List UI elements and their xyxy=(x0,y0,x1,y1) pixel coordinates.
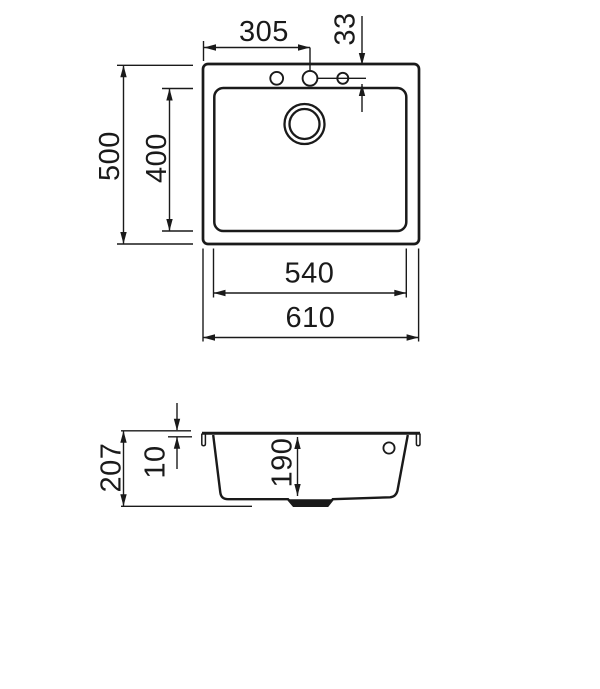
dim-label-207: 207 xyxy=(96,443,128,493)
dim-label-400: 400 xyxy=(141,133,173,183)
arrowhead-up xyxy=(120,431,126,443)
arrowhead-down xyxy=(120,494,126,506)
dimension-faucet-edge-distance: 33 xyxy=(330,12,366,112)
side-view: 207 10 190 xyxy=(96,403,421,506)
bowl-section-profile xyxy=(213,435,408,506)
arrowhead-down xyxy=(166,219,172,231)
sink-outer-edge xyxy=(203,64,419,244)
technical-drawing-page: 305 33 500 400 xyxy=(0,0,600,689)
dim-label-190: 190 xyxy=(267,438,299,488)
rim-left-lip xyxy=(202,434,206,446)
dim-label-610: 610 xyxy=(286,302,336,334)
dimension-bowl-depth: 400 xyxy=(141,89,193,232)
faucet-hole-left xyxy=(270,72,283,85)
arrowhead-down xyxy=(120,232,126,244)
dimension-bowl-width: 540 xyxy=(214,249,407,298)
top-view: 305 33 500 400 xyxy=(94,12,419,341)
arrowhead-up xyxy=(120,65,126,77)
arrowhead-left xyxy=(204,44,216,50)
sink-dimension-drawing: 305 33 500 400 xyxy=(0,0,600,689)
overflow-hole xyxy=(383,442,394,453)
dimension-overall-height: 207 xyxy=(96,431,253,507)
dim-label-540: 540 xyxy=(285,258,335,290)
drain-recess xyxy=(288,499,333,506)
dim-label-305: 305 xyxy=(239,16,289,48)
arrowhead-right xyxy=(394,290,406,296)
dimension-rim-thickness: 10 xyxy=(140,403,193,479)
dim-label-10: 10 xyxy=(140,445,172,478)
arrowhead-left xyxy=(214,290,226,296)
dim-label-33: 33 xyxy=(330,12,362,45)
rim-right-lip xyxy=(416,434,420,446)
arrowhead-up xyxy=(174,437,180,449)
arrowhead-left xyxy=(203,334,215,340)
drain-inner-ring xyxy=(290,109,320,139)
dim-label-500: 500 xyxy=(94,131,126,181)
arrowhead-down xyxy=(174,419,180,431)
faucet-hole-middle xyxy=(303,71,318,86)
arrowhead-right xyxy=(407,334,419,340)
dimension-faucet-offset: 305 xyxy=(204,16,311,70)
dimension-bowl-inner-depth: 190 xyxy=(267,437,301,496)
arrowhead-up xyxy=(359,84,365,96)
arrowhead-up xyxy=(166,89,172,101)
arrowhead-right xyxy=(298,44,310,50)
